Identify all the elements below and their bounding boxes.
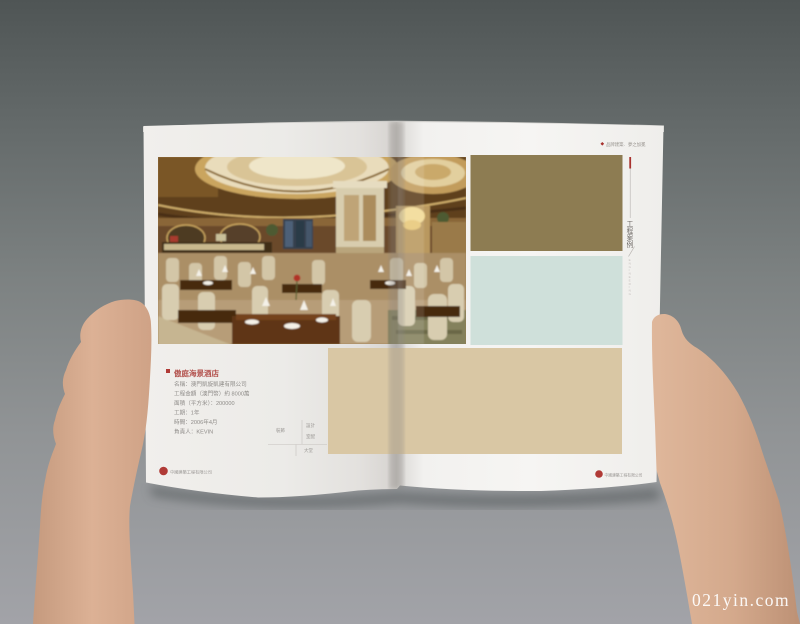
svg-text:案: 案 bbox=[627, 233, 634, 242]
svg-text:程: 程 bbox=[627, 226, 634, 235]
svg-text:傲庭海景酒店: 傲庭海景酒店 bbox=[174, 368, 219, 378]
svg-text:工期：1年: 工期：1年 bbox=[174, 409, 200, 417]
svg-text:中國建築工程有限公司: 中國建築工程有限公司 bbox=[605, 473, 643, 478]
svg-text:負責人：KEVIN: 負責人：KEVIN bbox=[174, 428, 213, 436]
svg-text:時間：2006年4月: 時間：2006年4月 bbox=[174, 418, 218, 426]
svg-text:名稱：澳門凱旋凱建有限公司: 名稱：澳門凱旋凱建有限公司 bbox=[174, 380, 247, 388]
svg-text:室配: 室配 bbox=[306, 433, 315, 440]
svg-text:021yin.com: 021yin.com bbox=[692, 590, 790, 610]
svg-text:裝飾: 裝飾 bbox=[276, 427, 285, 434]
svg-text:中國建築工程有限公司: 中國建築工程有限公司 bbox=[170, 469, 212, 476]
svg-text:例: 例 bbox=[627, 240, 634, 249]
svg-text:大堂: 大堂 bbox=[304, 447, 313, 454]
svg-text:品牌建築．夢之加冕: 品牌建築．夢之加冕 bbox=[606, 141, 646, 148]
svg-text:工程金額（澳門幣）約 8000萬: 工程金額（澳門幣）約 8000萬 bbox=[174, 390, 250, 398]
svg-text:設計: 設計 bbox=[306, 422, 315, 429]
svg-text:面積（平方米）：200000: 面積（平方米）：200000 bbox=[174, 399, 235, 407]
svg-text:工: 工 bbox=[627, 221, 634, 228]
